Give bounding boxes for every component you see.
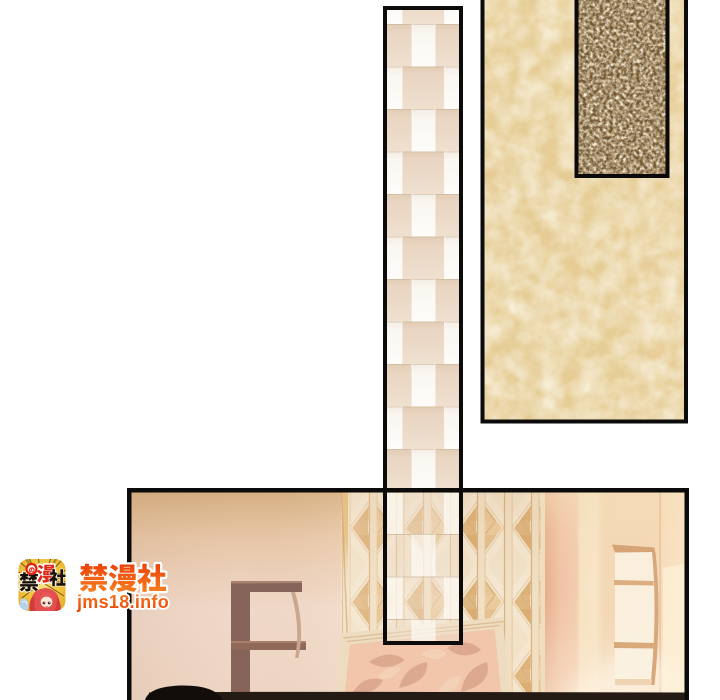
svg-text:jms18.info: jms18.info: [76, 592, 169, 612]
